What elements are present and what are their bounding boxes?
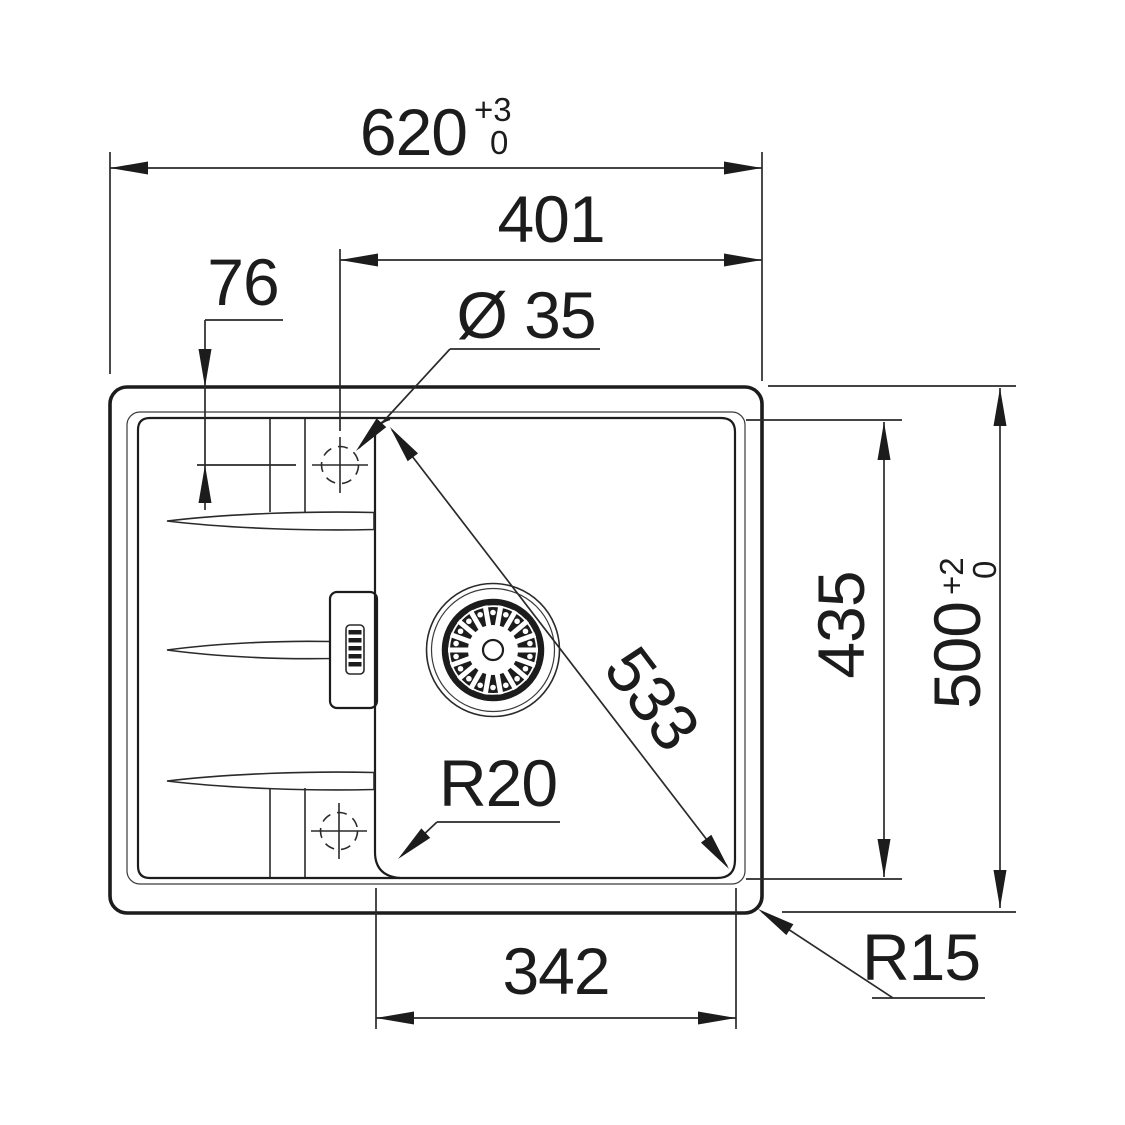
dim-arrow <box>340 254 378 267</box>
drainboard-groove <box>167 772 374 790</box>
dim-hole-diameter-label: Ø 35 <box>456 278 595 352</box>
dim-overall-depth-tol-plus: +2 <box>933 557 970 595</box>
dim-bowl-corner-radius: R20 <box>394 746 560 864</box>
dim-arrow <box>878 839 891 877</box>
dim-overall-width-label: 620 <box>360 95 467 169</box>
dim-arrow <box>994 388 1007 426</box>
dim-bowl-width-label: 342 <box>502 934 609 1008</box>
dim-arrow <box>110 162 148 175</box>
dim-arrow <box>724 162 762 175</box>
dim-arrow <box>376 1012 414 1025</box>
dim-overall-depth-tol-zero: 0 <box>966 561 1003 579</box>
dim-bowl-height: 435 <box>804 422 891 877</box>
dim-edge-to-hole-label: 76 <box>207 245 278 319</box>
overflow-assembly <box>330 592 377 708</box>
drainboard-grooves <box>167 512 374 790</box>
drainboard-groove <box>167 512 374 530</box>
dim-hole-to-right-label: 401 <box>497 182 604 256</box>
drainboard-groove <box>167 641 330 658</box>
overflow-grille-slots <box>349 630 362 667</box>
drawing-canvas: 620 +3 0 401 76 Ø 35 533 435 <box>0 0 1125 1125</box>
dim-arrow <box>994 870 1007 908</box>
dim-arrow <box>701 835 734 873</box>
dim-arrow <box>199 465 212 503</box>
dim-bowl-diagonal: 533 <box>385 423 734 873</box>
sink-body <box>110 387 762 913</box>
dim-arrow <box>724 254 762 267</box>
dim-bowl-height-label: 435 <box>804 571 878 678</box>
sink-technical-drawing: 620 +3 0 401 76 Ø 35 533 435 <box>0 0 1125 1125</box>
dim-bowl-diagonal-label: 533 <box>591 633 715 763</box>
second-faucet-hole <box>311 803 367 859</box>
sink-outer-rim <box>110 387 762 913</box>
dim-overall-width: 620 +3 0 <box>110 91 762 175</box>
dim-arrow <box>385 423 418 461</box>
dim-overall-width-tol-plus: +3 <box>474 91 512 128</box>
drain-center-hole <box>483 640 503 660</box>
dim-arrow <box>351 418 386 455</box>
dim-arrow <box>394 828 431 863</box>
dim-arrow <box>878 422 891 460</box>
bowl-divider <box>375 419 400 878</box>
dim-outer-corner-radius-label: R15 <box>862 920 980 994</box>
dim-hole-diameter: Ø 35 <box>351 278 600 455</box>
dim-arrow <box>754 904 793 936</box>
dim-outer-corner-radius: R15 <box>754 904 985 998</box>
dim-overall-depth: 500 +2 0 <box>920 388 1007 908</box>
dim-overall-width-tol-zero: 0 <box>490 124 508 161</box>
tap-deck-lines <box>270 419 305 877</box>
dim-bowl-corner-radius-label: R20 <box>439 746 557 820</box>
dim-arrow <box>698 1012 736 1025</box>
dim-overall-depth-label: 500 <box>920 602 994 709</box>
dim-bowl-width: 342 <box>376 934 736 1025</box>
dim-arrow <box>199 349 212 387</box>
drain-strainer <box>427 584 560 717</box>
dim-hole-to-right: 401 <box>340 182 762 267</box>
